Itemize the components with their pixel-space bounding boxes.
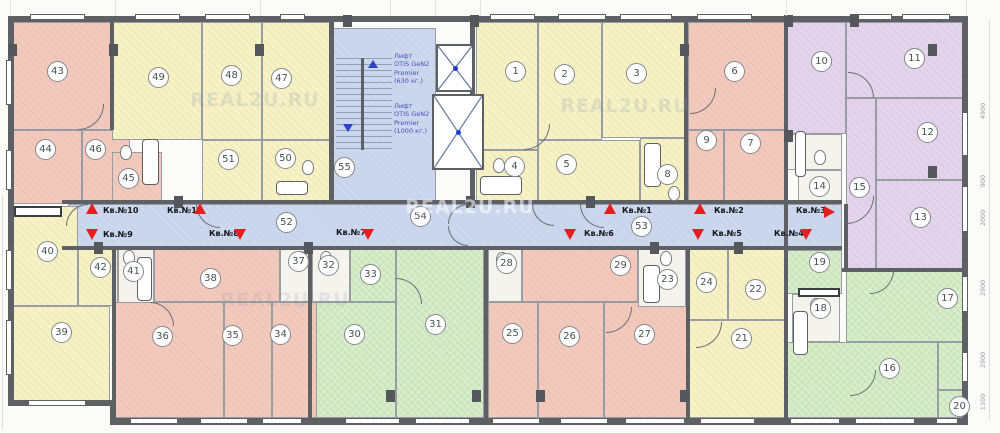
window <box>625 418 685 424</box>
structural-column <box>386 390 395 402</box>
structural-column <box>470 15 479 27</box>
dimension-label: 900 <box>979 166 987 196</box>
room-30 <box>316 302 396 418</box>
room-number-badge: 38 <box>200 268 221 289</box>
room-number-badge: 47 <box>271 68 292 89</box>
room-number-badge: 55 <box>334 157 355 178</box>
bathtub <box>795 131 806 177</box>
dimension-label: 4900 <box>979 96 987 126</box>
window <box>700 418 755 424</box>
elevator-dot <box>456 130 461 135</box>
wall <box>842 268 968 272</box>
room-number-badge: 17 <box>937 288 958 309</box>
room-number-badge: 7 <box>740 133 761 154</box>
room-number-badge: 13 <box>910 207 931 228</box>
direction-arrow-down <box>564 229 576 240</box>
bathtub <box>793 311 808 355</box>
window <box>205 14 250 20</box>
dimension-label: 2900 <box>979 345 987 375</box>
room-number-badge: 15 <box>849 177 870 198</box>
apartment-label: Кв.№5 <box>712 229 742 238</box>
wall <box>484 247 488 418</box>
room-number-badge: 52 <box>276 212 297 233</box>
window <box>30 14 85 20</box>
toilet <box>120 145 132 160</box>
room-number-badge: 51 <box>218 149 239 170</box>
structural-column <box>928 166 937 178</box>
room-number-badge: 34 <box>270 324 291 345</box>
counter <box>798 288 840 297</box>
room-number-badge: 23 <box>657 269 678 290</box>
wall <box>784 247 788 418</box>
room-number-badge: 33 <box>360 264 381 285</box>
window <box>415 418 470 424</box>
structural-column <box>94 242 103 254</box>
window <box>962 186 968 232</box>
window <box>6 150 12 190</box>
room-number-badge: 46 <box>85 139 106 160</box>
direction-arrow-down <box>343 124 353 132</box>
structural-column <box>784 130 793 142</box>
room-25 <box>488 302 538 418</box>
toilet <box>302 160 314 175</box>
grid-tick <box>480 0 481 16</box>
wall <box>110 22 114 130</box>
room-number-badge: 40 <box>37 241 58 262</box>
room-number-badge: 43 <box>47 61 68 82</box>
room-number-badge: 44 <box>35 139 56 160</box>
room-3 <box>602 22 688 138</box>
room-number-badge: 53 <box>631 216 652 237</box>
room-number-badge: 48 <box>221 65 242 86</box>
grid-tick <box>115 0 116 16</box>
grid-tick <box>260 0 261 16</box>
structural-column <box>734 242 743 254</box>
watermark: REAL2U.RU <box>405 196 534 218</box>
grid-tick <box>10 0 11 16</box>
window <box>262 418 302 424</box>
room-35 <box>224 302 272 418</box>
apartment-label: Кв.№9 <box>103 230 133 239</box>
elevator-dot <box>453 66 458 71</box>
dimension-label: 2900 <box>979 273 987 303</box>
watermark: REAL2U.RU <box>220 289 349 311</box>
window <box>28 400 86 406</box>
dimension-label: 1200 <box>979 387 987 417</box>
room-number-badge: 24 <box>696 272 717 293</box>
direction-arrow-down <box>234 229 246 240</box>
structural-column <box>109 44 118 56</box>
room-number-badge: 41 <box>123 261 144 282</box>
window <box>135 14 180 20</box>
room-number-badge: 5 <box>556 154 577 175</box>
room-number-badge: 29 <box>610 255 631 276</box>
room-number-badge: 9 <box>696 130 717 151</box>
direction-arrow-down <box>800 229 812 240</box>
window <box>200 418 248 424</box>
room-number-badge: 1 <box>505 61 526 82</box>
elevator-shaft <box>432 94 484 170</box>
window <box>6 250 12 290</box>
room-number-badge: 49 <box>148 67 169 88</box>
wall <box>308 247 312 418</box>
window <box>855 418 915 424</box>
window <box>492 418 540 424</box>
window <box>962 112 968 156</box>
room-number-badge: 10 <box>811 51 832 72</box>
apartment-label: Кв.№1 <box>622 206 652 215</box>
window <box>697 14 752 20</box>
toilet <box>814 150 826 165</box>
room-area <box>938 342 964 390</box>
window <box>6 320 12 375</box>
room-number-badge: 16 <box>879 358 900 379</box>
room-number-badge: 37 <box>288 251 309 272</box>
wall <box>361 58 364 150</box>
structural-column <box>928 44 937 56</box>
room-number-badge: 3 <box>626 63 647 84</box>
bathtub <box>276 181 308 195</box>
direction-arrow-up <box>194 203 206 214</box>
room-number-badge: 21 <box>731 328 752 349</box>
structural-column <box>304 242 313 254</box>
room-number-badge: 2 <box>554 64 575 85</box>
room-number-badge: 6 <box>724 61 745 82</box>
room-number-badge: 27 <box>634 324 655 345</box>
floor-plan-canvas: Лифт OTIS GeN2 Premier (630 кг.)Лифт OTI… <box>0 0 1000 433</box>
structural-column <box>8 44 17 56</box>
room-number-badge: 50 <box>275 148 296 169</box>
window <box>620 14 672 20</box>
room-number-badge: 42 <box>90 257 111 278</box>
room-number-badge: 19 <box>809 252 830 273</box>
direction-arrow-down <box>362 229 374 240</box>
wall <box>112 247 116 400</box>
staircase <box>336 58 392 150</box>
room-number-badge: 4 <box>504 156 525 177</box>
room-number-badge: 31 <box>425 314 446 335</box>
structural-column <box>650 242 659 254</box>
grid-tick <box>390 0 391 16</box>
counter <box>14 206 62 217</box>
room-number-badge: 30 <box>344 324 365 345</box>
structural-column <box>680 390 689 402</box>
window <box>345 418 400 424</box>
apartment-label: Кв.№10 <box>103 206 138 215</box>
grid-tick <box>786 0 787 16</box>
dimension-label: 2000 <box>979 203 987 233</box>
room-number-badge: 28 <box>496 253 517 274</box>
room-number-badge: 32 <box>318 255 339 276</box>
direction-arrow-up <box>368 60 378 68</box>
room-number-badge: 8 <box>657 164 678 185</box>
watermark: REAL2U.RU <box>190 89 319 111</box>
toilet <box>668 186 680 201</box>
window <box>560 418 608 424</box>
structural-column <box>255 44 264 56</box>
elevator-label-2: Лифт OTIS GeN2 Premier (1000 кг.) <box>394 102 438 136</box>
structural-column <box>850 15 859 27</box>
direction-arrow-up <box>604 203 616 214</box>
window <box>962 352 968 382</box>
bathtub <box>480 176 522 195</box>
window <box>280 14 305 20</box>
apartment-label: Кв.№3 <box>796 206 826 215</box>
window <box>6 60 12 105</box>
room-number-badge: 20 <box>949 396 970 417</box>
room-26 <box>538 302 604 418</box>
window <box>490 14 535 20</box>
window <box>558 14 606 20</box>
apartment-label: Кв.№2 <box>714 206 744 215</box>
room-number-badge: 25 <box>502 323 523 344</box>
room-number-badge: 18 <box>810 298 831 319</box>
toilet <box>660 251 672 266</box>
direction-arrow-down <box>692 229 704 240</box>
room-number-badge: 11 <box>904 48 925 69</box>
room-number-badge: 14 <box>809 176 830 197</box>
room-number-badge: 12 <box>917 122 938 143</box>
room-10 <box>786 22 846 134</box>
window <box>790 418 840 424</box>
grid-tick <box>435 0 436 16</box>
window <box>936 418 958 424</box>
dimension-line <box>989 20 990 420</box>
dimension-line <box>2 195 3 430</box>
direction-arrow-up <box>86 203 98 214</box>
room-5 <box>538 140 640 204</box>
room-number-badge: 45 <box>118 168 139 189</box>
room-number-badge: 39 <box>51 322 72 343</box>
room-number-badge: 35 <box>222 325 243 346</box>
structural-column <box>680 44 689 56</box>
structural-column <box>784 15 793 27</box>
elevator-label-1: Лифт OTIS GeN2 Premier (630 кг.) <box>394 52 438 86</box>
watermark: REAL2U.RU <box>560 95 689 117</box>
direction-arrow-up <box>694 203 706 214</box>
room-39 <box>12 306 110 402</box>
direction-arrow-right <box>824 206 835 218</box>
wall <box>329 22 334 204</box>
window <box>902 14 950 20</box>
bathtub <box>142 139 159 185</box>
room-number-badge: 26 <box>559 326 580 347</box>
grid-tick <box>966 0 967 16</box>
structural-column <box>343 15 352 27</box>
elevator-shaft <box>436 44 474 92</box>
structural-column <box>472 390 481 402</box>
window <box>962 276 968 312</box>
structural-column <box>536 390 545 402</box>
window <box>130 418 178 424</box>
room-number-badge: 22 <box>745 279 766 300</box>
direction-arrow-down <box>86 229 98 240</box>
room-number-badge: 36 <box>152 326 173 347</box>
wall <box>62 246 842 250</box>
apartment-label: Кв.№6 <box>584 229 614 238</box>
